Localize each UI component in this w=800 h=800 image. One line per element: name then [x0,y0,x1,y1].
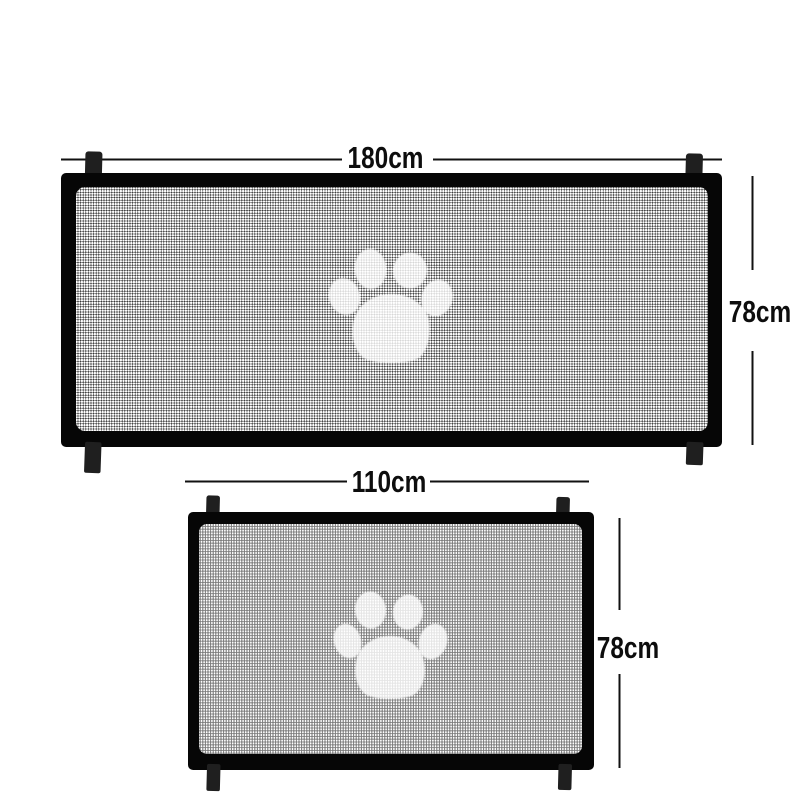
svg-text:180cm: 180cm [348,140,424,174]
svg-text:78cm: 78cm [729,294,791,328]
svg-text:110cm: 110cm [352,464,427,498]
svg-text:78cm: 78cm [597,630,659,664]
